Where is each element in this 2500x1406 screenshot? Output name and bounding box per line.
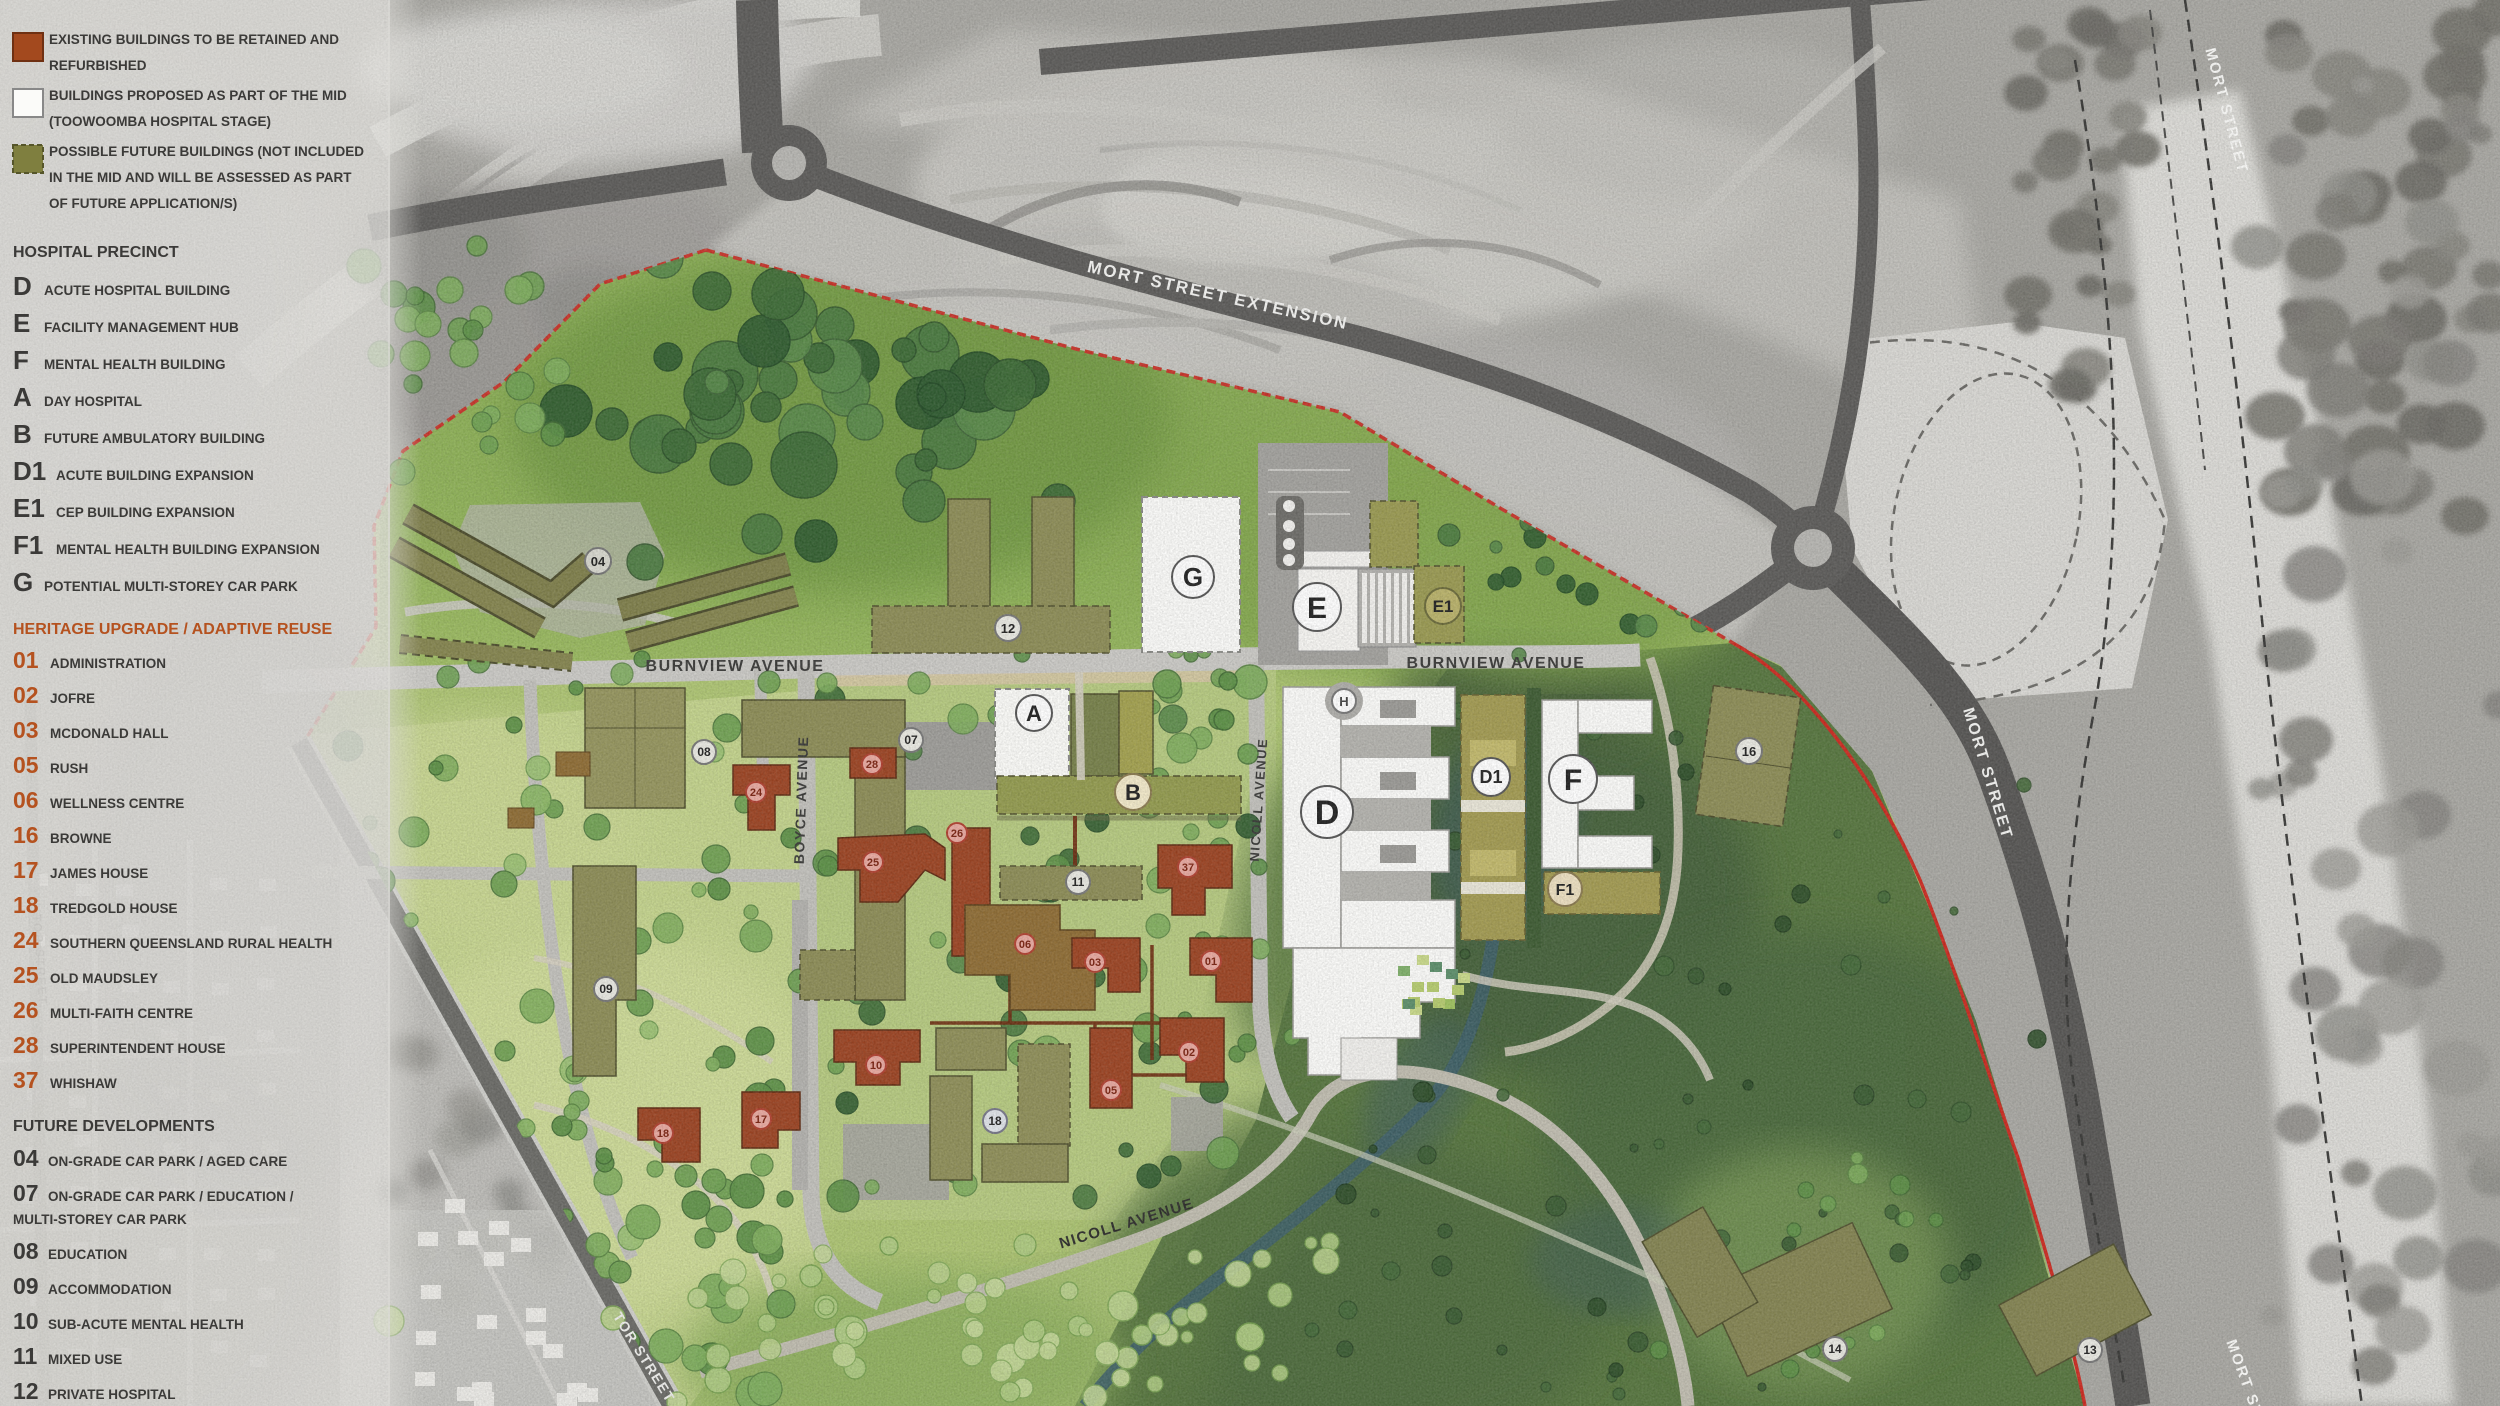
svg-text:F: F bbox=[13, 345, 29, 375]
svg-text:03: 03 bbox=[13, 717, 39, 743]
svg-text:D1: D1 bbox=[13, 456, 46, 486]
svg-text:BUILDINGS PROPOSED AS PART OF: BUILDINGS PROPOSED AS PART OF THE MID bbox=[49, 88, 347, 103]
svg-text:05: 05 bbox=[13, 752, 39, 778]
svg-text:EXISTING BUILDINGS TO BE RETAI: EXISTING BUILDINGS TO BE RETAINED AND bbox=[49, 32, 339, 47]
svg-text:ACCOMMODATION: ACCOMMODATION bbox=[48, 1282, 171, 1297]
svg-text:MULTI-STOREY CAR PARK: MULTI-STOREY CAR PARK bbox=[13, 1212, 187, 1227]
svg-text:ACUTE HOSPITAL BUILDING: ACUTE HOSPITAL BUILDING bbox=[44, 283, 230, 298]
svg-text:07: 07 bbox=[13, 1180, 39, 1206]
svg-text:12: 12 bbox=[13, 1378, 39, 1404]
svg-text:REFURBISHED: REFURBISHED bbox=[49, 58, 147, 73]
svg-text:MULTI-FAITH CENTRE: MULTI-FAITH CENTRE bbox=[50, 1006, 193, 1021]
svg-text:17: 17 bbox=[13, 857, 39, 883]
svg-text:MIXED USE: MIXED USE bbox=[48, 1352, 122, 1367]
svg-text:IN THE MID AND WILL BE ASSESSE: IN THE MID AND WILL BE ASSESSED AS PART bbox=[49, 170, 352, 185]
svg-text:FACILITY MANAGEMENT HUB: FACILITY MANAGEMENT HUB bbox=[44, 320, 239, 335]
svg-text:ADMINISTRATION: ADMINISTRATION bbox=[50, 656, 166, 671]
svg-text:F1: F1 bbox=[13, 530, 43, 560]
svg-text:ON-GRADE CAR PARK / EDUCATION: ON-GRADE CAR PARK / EDUCATION / bbox=[48, 1189, 294, 1204]
svg-text:26: 26 bbox=[13, 997, 39, 1023]
svg-text:24: 24 bbox=[13, 927, 39, 953]
svg-text:WHISHAW: WHISHAW bbox=[50, 1076, 117, 1091]
svg-text:16: 16 bbox=[13, 822, 39, 848]
svg-text:06: 06 bbox=[13, 787, 39, 813]
svg-text:JAMES HOUSE: JAMES HOUSE bbox=[50, 866, 148, 881]
svg-text:JOFRE: JOFRE bbox=[50, 691, 95, 706]
svg-text:ACUTE BUILDING EXPANSION: ACUTE BUILDING EXPANSION bbox=[56, 468, 254, 483]
svg-text:HERITAGE UPGRADE / ADAPTIVE RE: HERITAGE UPGRADE / ADAPTIVE REUSE bbox=[13, 621, 332, 638]
svg-text:37: 37 bbox=[13, 1067, 39, 1093]
svg-text:MENTAL HEALTH BUILDING: MENTAL HEALTH BUILDING bbox=[44, 357, 226, 372]
svg-text:MENTAL HEALTH BUILDING EXPANSI: MENTAL HEALTH BUILDING EXPANSION bbox=[56, 542, 320, 557]
svg-text:ON-GRADE CAR PARK / AGED CARE: ON-GRADE CAR PARK / AGED CARE bbox=[48, 1154, 287, 1169]
svg-text:04: 04 bbox=[13, 1145, 39, 1171]
svg-text:18: 18 bbox=[13, 892, 39, 918]
svg-text:BROWNE: BROWNE bbox=[50, 831, 112, 846]
svg-text:EDUCATION: EDUCATION bbox=[48, 1247, 127, 1262]
svg-text:E: E bbox=[13, 308, 30, 338]
svg-text:CEP BUILDING EXPANSION: CEP BUILDING EXPANSION bbox=[56, 505, 235, 520]
svg-text:OLD MAUDSLEY: OLD MAUDSLEY bbox=[50, 971, 158, 986]
svg-text:28: 28 bbox=[13, 1032, 39, 1058]
svg-text:B: B bbox=[13, 419, 32, 449]
svg-text:FUTURE DEVELOPMENTS: FUTURE DEVELOPMENTS bbox=[13, 1118, 215, 1135]
svg-text:10: 10 bbox=[13, 1308, 39, 1334]
svg-text:RUSH: RUSH bbox=[50, 761, 88, 776]
svg-text:POTENTIAL MULTI-STOREY CAR PA: POTENTIAL MULTI-STOREY CAR PARK bbox=[44, 579, 298, 594]
svg-text:02: 02 bbox=[13, 682, 39, 708]
svg-text:25: 25 bbox=[13, 962, 39, 988]
svg-text:PRIVATE HOSPITAL: PRIVATE HOSPITAL bbox=[48, 1387, 176, 1402]
svg-text:08: 08 bbox=[13, 1238, 39, 1264]
svg-text:HOSPITAL PRECINCT: HOSPITAL PRECINCT bbox=[13, 244, 179, 261]
svg-text:D: D bbox=[13, 271, 32, 301]
svg-text:SUB-ACUTE MENTAL HEALTH: SUB-ACUTE MENTAL HEALTH bbox=[48, 1317, 244, 1332]
svg-text:09: 09 bbox=[13, 1273, 39, 1299]
svg-text:G: G bbox=[13, 567, 33, 597]
svg-text:SUPERINTENDENT HOUSE: SUPERINTENDENT HOUSE bbox=[50, 1041, 226, 1056]
svg-text:POSSIBLE FUTURE BUILDINGS (NOT: POSSIBLE FUTURE BUILDINGS (NOT INCLUDED bbox=[49, 144, 364, 159]
svg-text:DAY HOSPITAL: DAY HOSPITAL bbox=[44, 394, 142, 409]
svg-text:MCDONALD HALL: MCDONALD HALL bbox=[50, 726, 168, 741]
svg-text:SOUTHERN QUEENSLAND RURAL HEAL: SOUTHERN QUEENSLAND RURAL HEALTH bbox=[50, 936, 332, 951]
svg-text:FUTURE AMBULATORY BUILDING: FUTURE AMBULATORY BUILDING bbox=[44, 431, 265, 446]
svg-text:11: 11 bbox=[13, 1343, 38, 1369]
svg-text:(TOOWOOMBA HOSPITAL STAGE): (TOOWOOMBA HOSPITAL STAGE) bbox=[49, 114, 271, 129]
svg-text:TREDGOLD HOUSE: TREDGOLD HOUSE bbox=[50, 901, 178, 916]
svg-text:E1: E1 bbox=[13, 493, 45, 523]
svg-text:WELLNESS CENTRE: WELLNESS CENTRE bbox=[50, 796, 184, 811]
svg-text:A: A bbox=[13, 382, 32, 412]
svg-text:01: 01 bbox=[13, 647, 39, 673]
svg-text:OF FUTURE APPLICATION/S): OF FUTURE APPLICATION/S) bbox=[49, 196, 237, 211]
